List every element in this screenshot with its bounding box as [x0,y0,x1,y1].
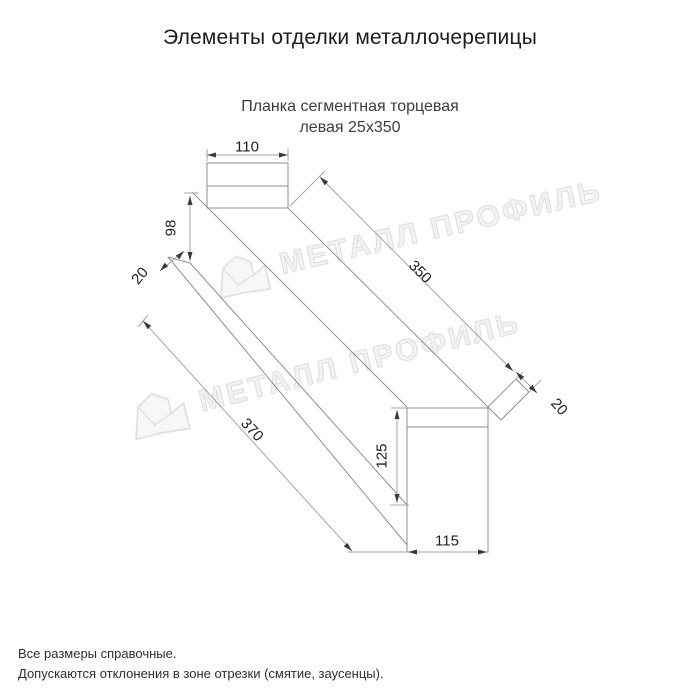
dimension-arrows [143,153,537,555]
part-outline-drawing [0,0,700,700]
note-dimensions-reference: Все размеры справочные. [18,644,384,664]
drawing-page: { "header": { "title": "Элементы отделки… [0,0,700,700]
dimension-left-height: 98 [163,220,180,237]
footer-notes: Все размеры справочные. Допускаются откл… [18,644,384,684]
note-cut-zone-deviations: Допускаются отклонения в зоне отрезки (с… [18,664,384,684]
part-edges [168,163,529,552]
dimension-right-height: 125 [374,443,391,468]
dimension-bottom-width: 115 [435,533,459,550]
dimension-top-width: 110 [235,139,259,156]
dimension-lines [138,149,541,552]
technical-drawing: МЕТАЛЛ ПРОФИЛЬ МЕТАЛЛ ПРОФИЛЬ [0,0,700,700]
